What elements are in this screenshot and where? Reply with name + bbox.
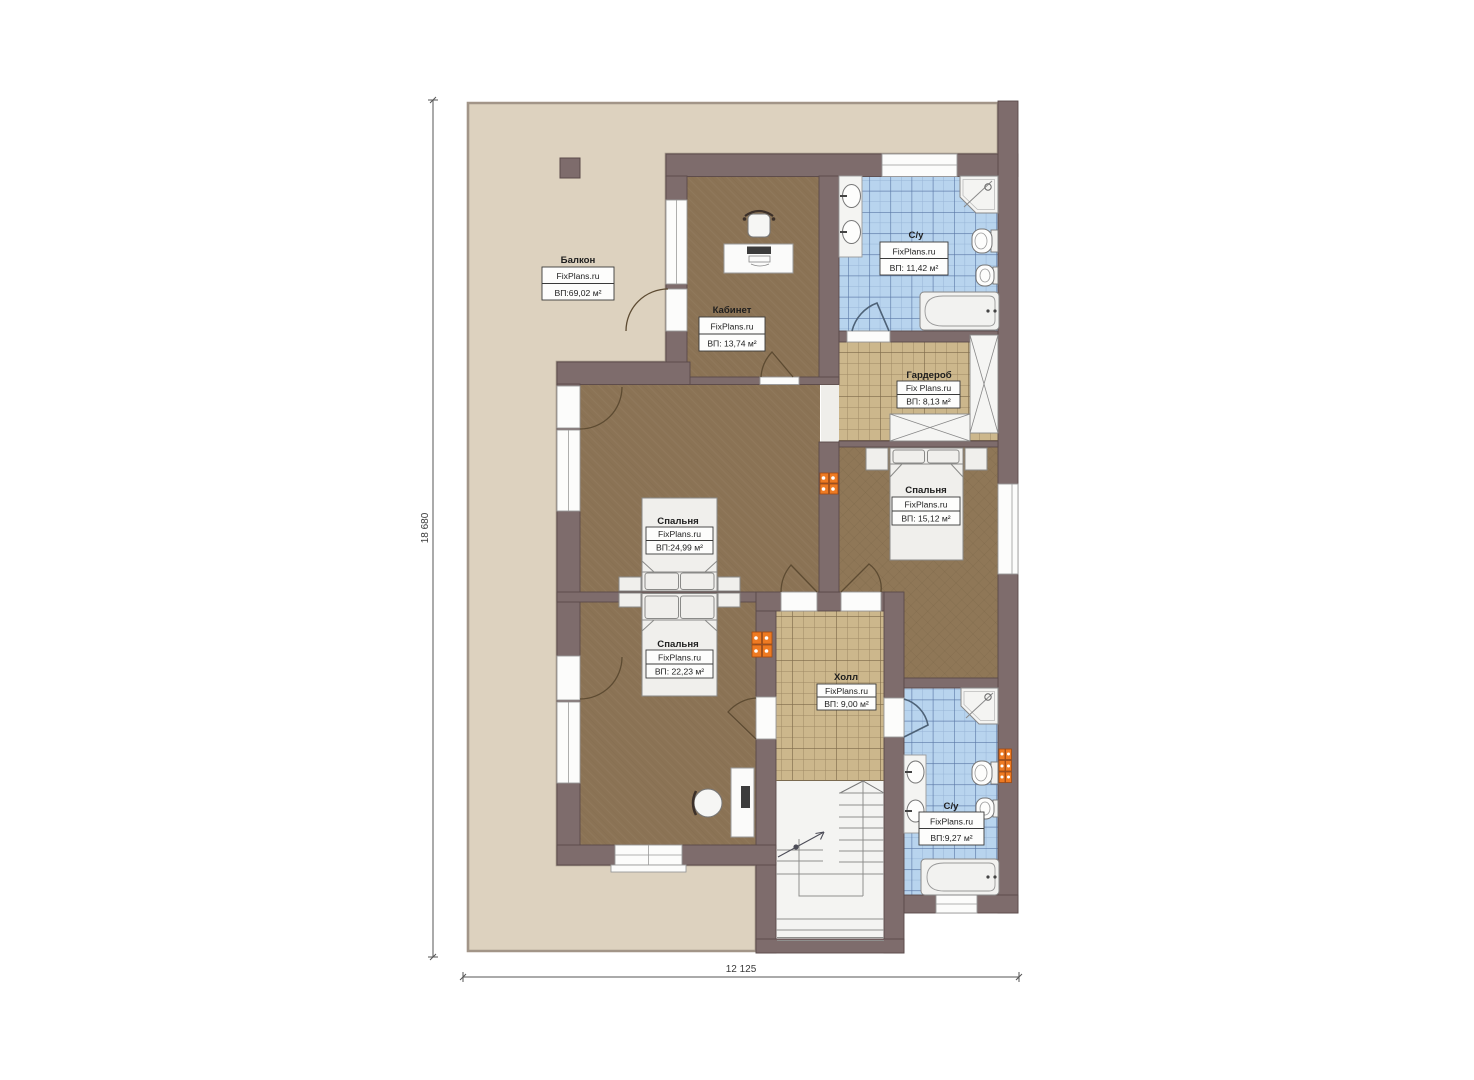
svg-text:Холл: Холл	[834, 672, 858, 683]
svg-text:Fix Plans.ru: Fix Plans.ru	[906, 383, 952, 393]
svg-text:С/у: С/у	[909, 230, 925, 241]
svg-text:FixPlans.ru: FixPlans.ru	[905, 500, 948, 510]
svg-text:12 125: 12 125	[726, 964, 757, 975]
svg-text:FixPlans.ru: FixPlans.ru	[658, 653, 701, 663]
svg-text:С/у: С/у	[944, 801, 960, 812]
svg-text:FixPlans.ru: FixPlans.ru	[658, 529, 701, 539]
svg-text:Балкон: Балкон	[561, 255, 596, 266]
svg-text:FixPlans.ru: FixPlans.ru	[930, 817, 973, 827]
svg-text:ВП: 22,23 м²: ВП: 22,23 м²	[655, 667, 704, 677]
svg-text:ВП: 9,00 м²: ВП: 9,00 м²	[824, 699, 869, 709]
svg-text:ВП: 13,74 м²: ВП: 13,74 м²	[707, 339, 756, 349]
svg-text:FixPlans.ru: FixPlans.ru	[711, 322, 754, 332]
svg-text:Спальня: Спальня	[657, 516, 698, 527]
svg-text:18 680: 18 680	[420, 512, 431, 543]
svg-text:Кабинет: Кабинет	[713, 305, 752, 316]
svg-text:FixPlans.ru: FixPlans.ru	[893, 247, 936, 257]
svg-text:ВП:69,02 м²: ВП:69,02 м²	[555, 288, 602, 298]
svg-text:ВП: 11,42 м²: ВП: 11,42 м²	[890, 263, 939, 273]
svg-text:ВП: 15,12 м²: ВП: 15,12 м²	[901, 514, 950, 524]
svg-text:ВП: 8,13 м²: ВП: 8,13 м²	[906, 397, 951, 407]
svg-text:ВП:9,27 м²: ВП:9,27 м²	[930, 833, 972, 843]
svg-text:Спальня: Спальня	[905, 485, 946, 496]
svg-text:Спальня: Спальня	[657, 639, 698, 650]
svg-text:FixPlans.ru: FixPlans.ru	[557, 271, 600, 281]
svg-text:Гардероб: Гардероб	[906, 370, 951, 381]
svg-text:ВП:24,99 м²: ВП:24,99 м²	[656, 543, 703, 553]
svg-text:FixPlans.ru: FixPlans.ru	[825, 686, 868, 696]
